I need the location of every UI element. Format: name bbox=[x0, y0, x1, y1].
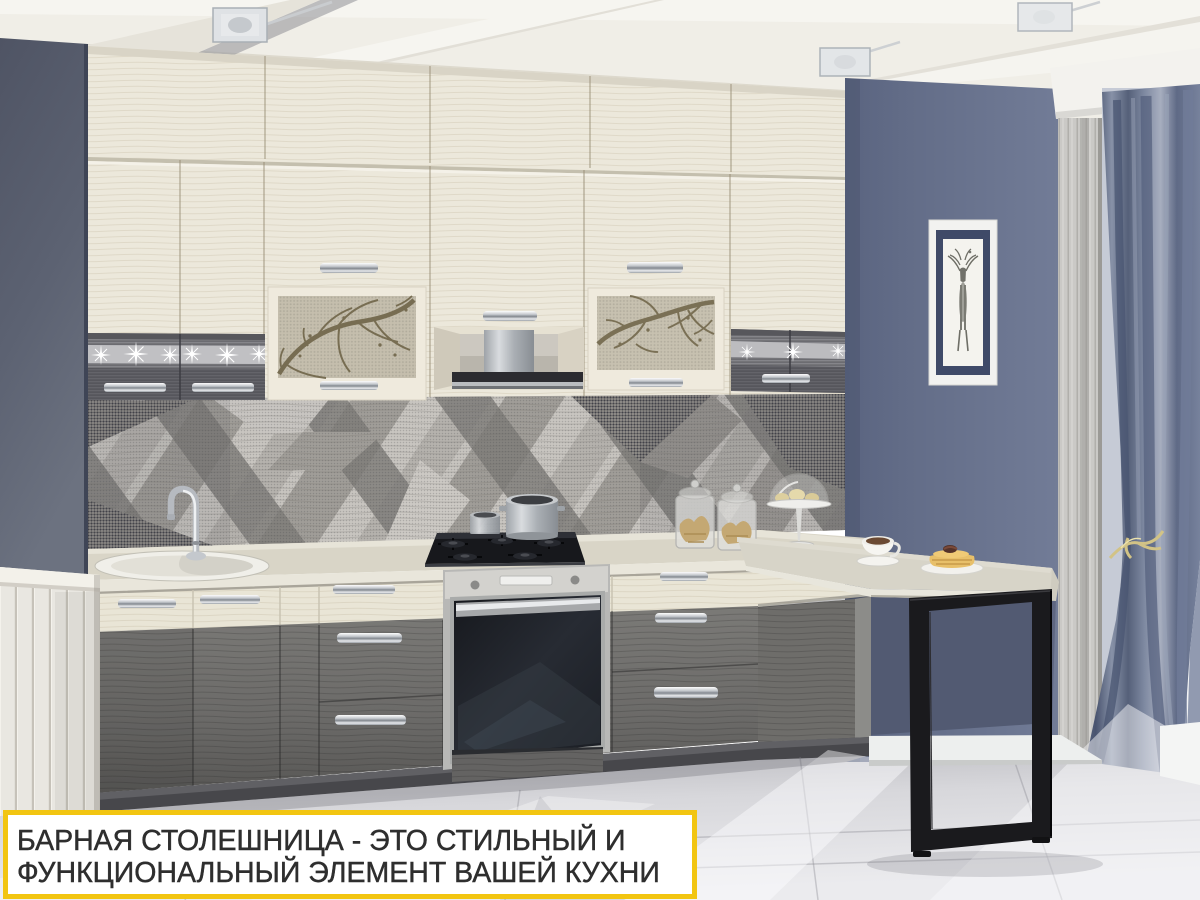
svg-text:БАРНАЯ СТОЛЕШНИЦА - ЭТО СТИЛЬН: БАРНАЯ СТОЛЕШНИЦА - ЭТО СТИЛЬНЫЙ И bbox=[17, 825, 625, 857]
svg-text:ФУНКЦИОНАЛЬНЫЙ ЭЛЕМЕНТ ВАШЕЙ К: ФУНКЦИОНАЛЬНЫЙ ЭЛЕМЕНТ ВАШЕЙ КУХНИ bbox=[17, 857, 660, 889]
